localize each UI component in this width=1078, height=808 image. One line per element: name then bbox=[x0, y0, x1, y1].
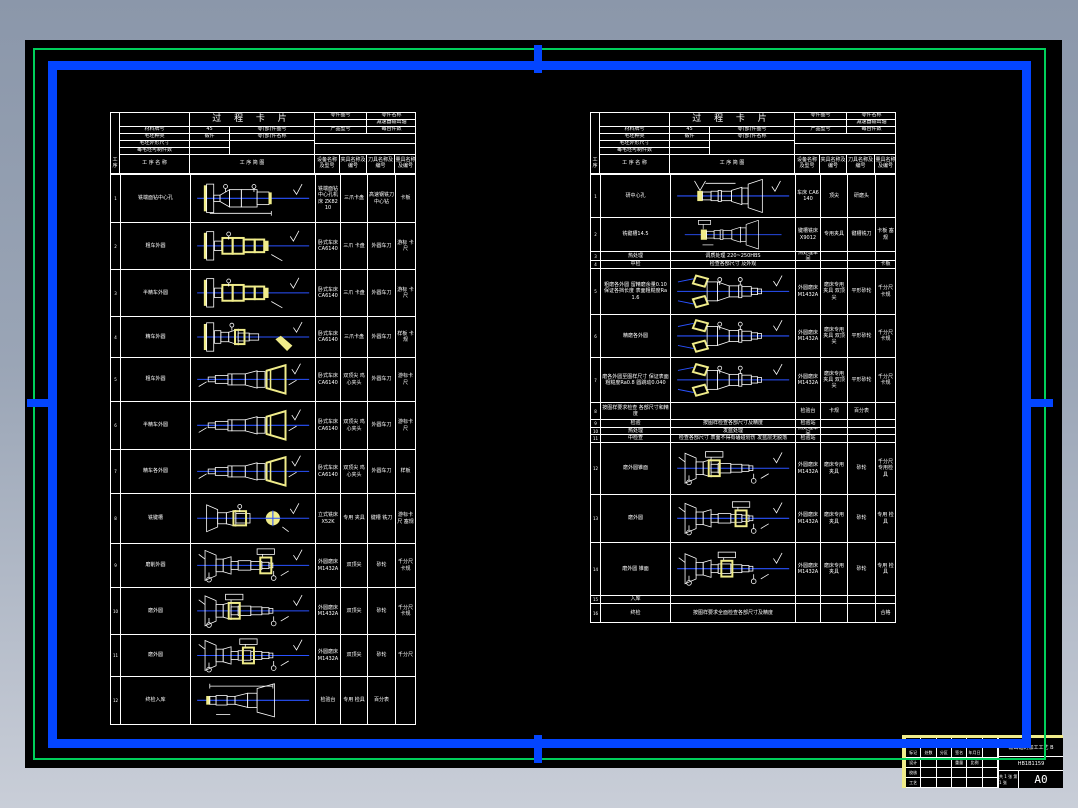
drawing-canvas[interactable]: 材料牌号毛坯种类毛坯外形尺寸每毛坯可制件数过 程 卡 片45锻件零(部)件图号零… bbox=[25, 40, 1062, 768]
title-block-cell bbox=[937, 768, 952, 778]
center-mark-top bbox=[534, 45, 542, 73]
title-block-cell bbox=[983, 778, 998, 788]
center-mark-left bbox=[27, 399, 57, 407]
title-block-cell bbox=[952, 768, 967, 778]
title-block-cell bbox=[937, 778, 952, 788]
title-block-cell bbox=[967, 778, 982, 788]
title-block-cell: 工艺 bbox=[906, 778, 921, 788]
title-block-cell bbox=[921, 768, 936, 778]
title-block-cell: 校核 bbox=[906, 768, 921, 778]
center-mark-right bbox=[1023, 399, 1053, 407]
title-block-cell bbox=[921, 778, 936, 788]
title-block-cell bbox=[983, 768, 998, 778]
cad-viewport: { "colors": { "background_top": "#8b97aa… bbox=[0, 0, 1078, 808]
sheet-inner-border bbox=[48, 61, 1031, 748]
title-block-cell bbox=[952, 778, 967, 788]
title-block-cell bbox=[967, 768, 982, 778]
title-block-pages: 共 1 张 第 1 张 bbox=[999, 771, 1019, 788]
center-mark-bottom bbox=[534, 735, 542, 763]
title-block-sheet-size: A0 bbox=[1019, 771, 1063, 788]
